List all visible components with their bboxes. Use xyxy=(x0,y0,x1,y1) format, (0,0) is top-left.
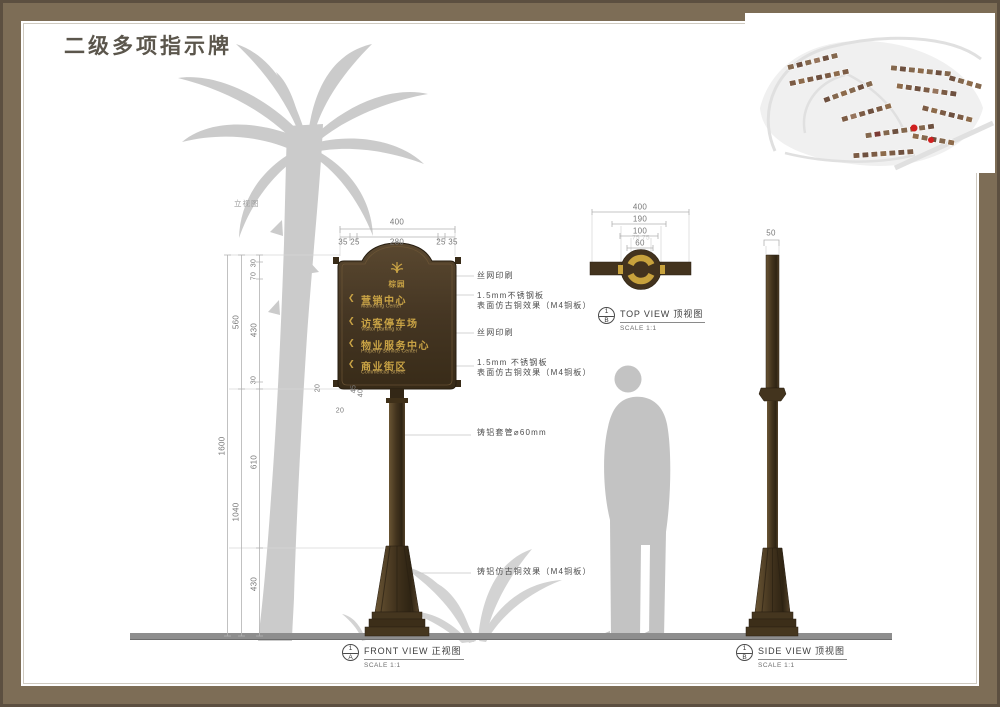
dim-joint-a: 45 xyxy=(351,385,358,393)
top-view-label: 1 B TOP VIEW 顶视图 SCALE 1:1 xyxy=(598,307,705,332)
sign-item-en: Commercial Street xyxy=(361,370,405,375)
annotation: 铸铝套管⌀60mm xyxy=(477,428,547,438)
sign-item: ❮ 访客停车场 Visitor parking lot xyxy=(348,315,452,335)
view-ref-symbol: 1 A xyxy=(342,644,359,661)
site-location-map xyxy=(745,13,995,173)
map-location-dot xyxy=(928,137,934,143)
dim-panel-bottom: 30 xyxy=(251,376,258,384)
dim-front-total-width: 400 xyxy=(390,218,404,227)
view-title-cn: 顶视图 xyxy=(815,646,845,656)
view-scale: SCALE 1:1 xyxy=(758,662,847,669)
view-title-cn: 顶视图 xyxy=(673,309,703,319)
annotation: 铸铝仿古铜效果（M4铜板） xyxy=(477,567,592,577)
dim-side-width: 50 xyxy=(766,229,776,238)
view-title-en: SIDE VIEW xyxy=(758,646,812,656)
sign-item: ❮ 物业服务中心 Property Service Center xyxy=(348,337,452,357)
sign-item: ❮ 商业街区 Commercial Street xyxy=(348,358,452,378)
left-arrow-icon: ❮ xyxy=(348,293,355,302)
front-view-label: 1 A FRONT VIEW 正视图 SCALE 1:1 xyxy=(342,644,464,669)
annotation: 丝网印刷 xyxy=(477,328,514,338)
sign-item-en: Visitor parking lot xyxy=(361,327,401,332)
dim-panel-body: 430 xyxy=(250,323,259,337)
dim-front-seg-left: 35 25 xyxy=(338,238,360,247)
dim-joint-left: 20 xyxy=(315,384,322,392)
annotation: 1.5mm不锈钢板 表面仿古铜效果（M4铜板） xyxy=(477,291,592,310)
left-arrow-icon: ❮ xyxy=(348,316,355,325)
dim-front-seg-center: 280 xyxy=(390,238,404,247)
palm-logo-icon xyxy=(388,260,406,274)
view-title-en: TOP VIEW xyxy=(620,309,670,319)
view-ref-symbol: 1 B xyxy=(598,307,615,324)
view-ref-symbol: 1 B xyxy=(736,644,753,661)
left-arrow-icon: ❮ xyxy=(348,338,355,347)
dim-pole-upper: 610 xyxy=(250,455,259,469)
view-title-en: FRONT VIEW xyxy=(364,646,428,656)
view-title-cn: 正视图 xyxy=(432,646,462,656)
annotation: 丝网印刷 xyxy=(477,271,514,281)
dim-front-seg-right: 25 35 xyxy=(436,238,458,247)
dim-panel-height: 560 xyxy=(232,315,241,329)
dim-pole-height: 1040 xyxy=(232,503,241,522)
dim-top-400: 400 xyxy=(633,203,647,212)
dim-total-height: 1600 xyxy=(218,437,227,456)
sign-logo-text: 棕园 xyxy=(389,279,406,290)
sign-item-en: Marketing Center xyxy=(361,304,402,309)
map-location-dot xyxy=(911,125,918,132)
dim-top-190: 190 xyxy=(633,215,647,224)
side-view-label: 1 B SIDE VIEW 顶视图 SCALE 1:1 xyxy=(736,644,847,669)
dim-joint-below: 20 xyxy=(336,408,344,415)
sign-item: ❮ 营销中心 Marketing Center xyxy=(348,292,452,312)
dim-arch-small: 30 xyxy=(251,259,258,267)
side-view-graphic xyxy=(746,255,798,636)
top-view-graphic xyxy=(590,250,691,290)
view-scale: SCALE 1:1 xyxy=(620,325,705,332)
left-arrow-icon: ❮ xyxy=(348,359,355,368)
design-sheet: 二级多项指示牌 立视图 400 35 25 280 25 35 1600 560… xyxy=(0,0,1000,707)
dim-arch: 70 xyxy=(251,272,258,280)
sign-item-en: Property Service Center xyxy=(361,349,417,354)
elevation-note: 立视图 xyxy=(234,198,260,209)
annotation: 1.5mm 不锈钢板 表面仿古铜效果（M4铜板） xyxy=(477,358,592,377)
dim-top-60: 60 xyxy=(635,239,645,248)
view-scale: SCALE 1:1 xyxy=(364,662,464,669)
dim-base-height: 430 xyxy=(250,577,259,591)
dim-joint-b: 40 xyxy=(358,389,365,397)
page-title: 二级多项指示牌 xyxy=(64,30,232,60)
